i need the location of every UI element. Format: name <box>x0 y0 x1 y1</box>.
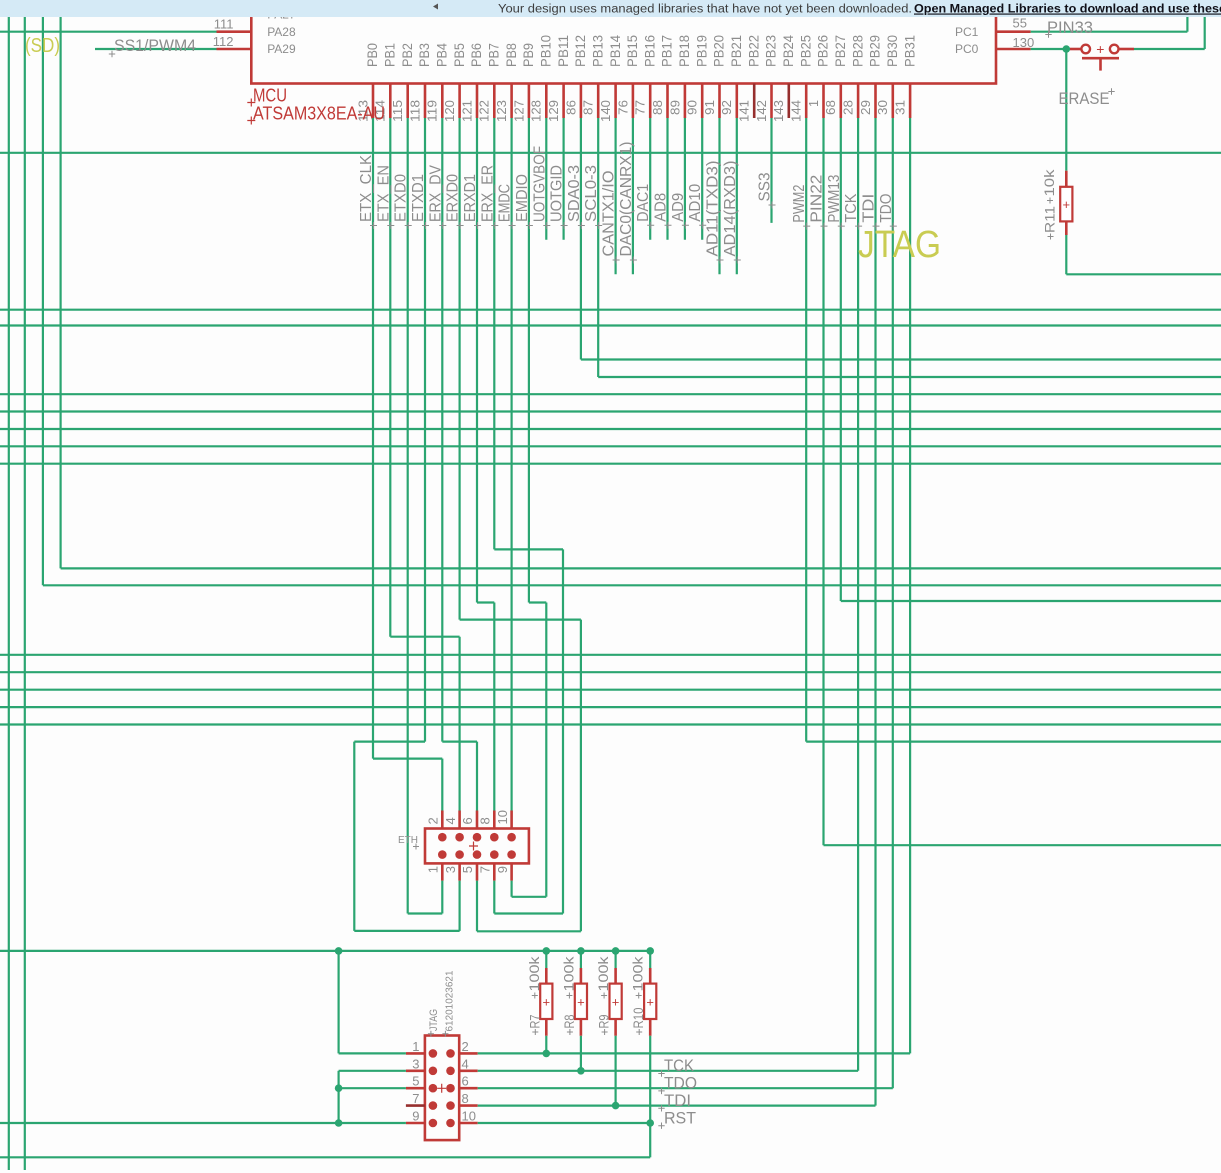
svg-text:140: 140 <box>598 100 613 122</box>
svg-text:4: 4 <box>462 1056 469 1071</box>
svg-text:SCL0-3: SCL0-3 <box>583 165 600 222</box>
svg-text:PB29: PB29 <box>868 35 883 67</box>
svg-text:129: 129 <box>546 100 561 122</box>
svg-text:120: 120 <box>442 100 457 122</box>
svg-text:30: 30 <box>875 100 890 115</box>
svg-text:ETX_EN: ETX_EN <box>375 165 392 222</box>
svg-text:PB21: PB21 <box>729 35 744 67</box>
svg-text:PB14: PB14 <box>608 35 623 67</box>
svg-text:TDO: TDO <box>878 194 895 223</box>
svg-text:89: 89 <box>667 100 682 115</box>
svg-text:MCU: MCU <box>253 86 287 106</box>
svg-text:55: 55 <box>1013 16 1027 31</box>
svg-text:TDI: TDI <box>861 194 878 223</box>
svg-text:10k: 10k <box>1041 168 1057 196</box>
svg-text:119: 119 <box>425 100 440 122</box>
svg-text:91: 91 <box>702 100 717 115</box>
svg-text:61201023621: 61201023621 <box>444 970 456 1031</box>
svg-text:PA29: PA29 <box>267 42 296 56</box>
svg-text:PB31: PB31 <box>902 35 917 67</box>
svg-text:100k: 100k <box>560 955 576 991</box>
svg-text:143: 143 <box>771 100 786 122</box>
svg-text:+: + <box>646 995 654 1010</box>
svg-text:87: 87 <box>581 100 596 115</box>
svg-text:5: 5 <box>412 1074 419 1089</box>
svg-text:AD9: AD9 <box>670 193 687 222</box>
svg-text:TDO: TDO <box>664 1074 697 1093</box>
svg-text:100k: 100k <box>630 955 646 991</box>
svg-text:4: 4 <box>443 817 458 824</box>
svg-text:TDI: TDI <box>664 1091 691 1110</box>
svg-text:PB7: PB7 <box>487 43 502 67</box>
svg-text:PB22: PB22 <box>746 35 761 67</box>
svg-text:8: 8 <box>478 817 493 824</box>
svg-text:10: 10 <box>462 1109 476 1124</box>
svg-text:8: 8 <box>462 1091 469 1106</box>
svg-text:122: 122 <box>477 100 492 122</box>
svg-text:PB25: PB25 <box>798 35 813 67</box>
svg-text:76: 76 <box>615 100 630 115</box>
svg-text:+: + <box>1063 197 1071 212</box>
svg-text:7: 7 <box>478 866 493 873</box>
svg-text:112: 112 <box>213 34 234 49</box>
svg-text:ERASE: ERASE <box>1059 89 1110 108</box>
svg-text:ERX_ER: ERX_ER <box>479 165 496 222</box>
svg-text:PB2: PB2 <box>400 43 415 67</box>
svg-text:PB9: PB9 <box>521 43 536 67</box>
svg-text:7: 7 <box>412 1091 419 1106</box>
svg-text:PB1: PB1 <box>383 43 398 67</box>
svg-text:127: 127 <box>511 100 526 122</box>
svg-text:UOTGVBOF: UOTGVBOF <box>531 146 548 222</box>
svg-text:R9: R9 <box>596 1014 612 1028</box>
svg-text:+: + <box>612 995 620 1010</box>
svg-text:PA28: PA28 <box>267 25 296 39</box>
svg-text:5: 5 <box>460 866 475 873</box>
svg-text:PB15: PB15 <box>625 35 640 67</box>
svg-text:TCK: TCK <box>843 193 860 222</box>
svg-text:ETX_CLK: ETX_CLK <box>358 155 375 222</box>
svg-text:PB12: PB12 <box>573 35 588 67</box>
svg-text:PB28: PB28 <box>850 35 865 67</box>
svg-text:PB19: PB19 <box>694 35 709 67</box>
svg-text:77: 77 <box>633 100 648 115</box>
svg-text:9: 9 <box>495 866 510 873</box>
svg-text:2: 2 <box>426 817 441 824</box>
svg-text:SDA0-3: SDA0-3 <box>566 165 583 222</box>
svg-text:1: 1 <box>412 1039 419 1054</box>
svg-text:ATSAM3X8EA-AU: ATSAM3X8EA-AU <box>253 104 385 124</box>
svg-text:128: 128 <box>529 100 544 122</box>
svg-text:DAC0(CANRX1): DAC0(CANRX1) <box>618 142 635 257</box>
svg-text:142: 142 <box>754 100 769 122</box>
svg-text:118: 118 <box>407 100 422 122</box>
svg-text:Your design uses managed libra: Your design uses managed libraries that … <box>498 4 912 16</box>
svg-text:ERXD0: ERXD0 <box>445 174 462 222</box>
svg-text:PB30: PB30 <box>885 35 900 67</box>
svg-text:PWM13: PWM13 <box>826 175 843 223</box>
svg-text:R11: R11 <box>1042 206 1058 233</box>
svg-text:115: 115 <box>390 100 405 122</box>
svg-text:141: 141 <box>737 100 752 122</box>
svg-text:PB24: PB24 <box>781 35 796 67</box>
svg-text:9: 9 <box>412 1109 419 1124</box>
svg-text:92: 92 <box>719 100 734 115</box>
svg-text:PC1: PC1 <box>955 25 979 39</box>
svg-text:68: 68 <box>823 100 838 115</box>
svg-text:TCK: TCK <box>664 1056 695 1075</box>
svg-text:ETXD1: ETXD1 <box>410 174 427 222</box>
svg-text:R8: R8 <box>561 1014 577 1028</box>
svg-text:JTAG: JTAG <box>428 1009 440 1031</box>
svg-text:PB10: PB10 <box>539 35 554 67</box>
svg-text:ERXD1: ERXD1 <box>462 174 479 222</box>
svg-text:(SD): (SD) <box>25 35 60 57</box>
svg-text:PB11: PB11 <box>556 35 571 67</box>
svg-text:PB5: PB5 <box>452 43 467 67</box>
svg-text:PB18: PB18 <box>677 35 692 67</box>
svg-text:JTAG: JTAG <box>858 224 941 266</box>
svg-text:10: 10 <box>495 810 510 824</box>
svg-text:ETH: ETH <box>398 835 418 846</box>
svg-text:EMDIO: EMDIO <box>514 174 531 222</box>
svg-text:6: 6 <box>460 817 475 824</box>
svg-text:Open Managed Libraries to down: Open Managed Libraries to download and u… <box>914 4 1221 16</box>
svg-text:DAC1: DAC1 <box>635 184 652 222</box>
svg-text:PB8: PB8 <box>504 43 519 67</box>
svg-text:111: 111 <box>214 17 234 32</box>
svg-text:AD8: AD8 <box>653 193 670 222</box>
svg-text:UOTGID: UOTGID <box>549 165 566 222</box>
svg-text:121: 121 <box>459 100 474 122</box>
svg-text:130: 130 <box>1013 35 1035 50</box>
svg-text:90: 90 <box>685 100 700 115</box>
svg-text:RST: RST <box>664 1108 696 1127</box>
svg-text:R7: R7 <box>526 1014 542 1028</box>
svg-text:144: 144 <box>789 100 804 122</box>
svg-text:AD11(TXD3): AD11(TXD3) <box>705 161 722 257</box>
svg-text:AD14(RXD3): AD14(RXD3) <box>722 161 739 257</box>
svg-text:31: 31 <box>893 100 908 115</box>
svg-text:3: 3 <box>412 1056 419 1071</box>
svg-text:PB3: PB3 <box>417 43 432 67</box>
svg-text:PB4: PB4 <box>435 43 450 67</box>
svg-text:PB0: PB0 <box>365 43 380 67</box>
svg-text:PB6: PB6 <box>469 43 484 67</box>
svg-text:PWM2: PWM2 <box>791 185 808 223</box>
svg-text:100k: 100k <box>526 955 542 991</box>
svg-text:PB23: PB23 <box>764 35 779 67</box>
svg-text:PIN33: PIN33 <box>1047 18 1093 37</box>
svg-text:AD10: AD10 <box>687 184 704 222</box>
svg-text:2: 2 <box>462 1039 469 1054</box>
svg-text:28: 28 <box>841 100 856 115</box>
svg-text:1: 1 <box>426 866 441 873</box>
svg-text:29: 29 <box>858 100 873 115</box>
svg-text:EMDC: EMDC <box>497 184 514 222</box>
svg-text:R10: R10 <box>630 1007 646 1028</box>
svg-text:1: 1 <box>806 100 821 107</box>
svg-text:PC0: PC0 <box>955 42 979 56</box>
svg-text:SS3: SS3 <box>757 172 774 201</box>
svg-text:6: 6 <box>462 1074 469 1089</box>
svg-text:86: 86 <box>563 100 578 115</box>
svg-text:3: 3 <box>443 866 458 873</box>
svg-text:ERX_DV: ERX_DV <box>427 165 444 222</box>
svg-text:100k: 100k <box>595 955 611 991</box>
svg-text:PIN22: PIN22 <box>809 174 826 222</box>
svg-text:+: + <box>577 995 585 1010</box>
svg-text:PB26: PB26 <box>816 35 831 67</box>
svg-text:+: + <box>1096 41 1104 57</box>
svg-text:SS1/PWM4: SS1/PWM4 <box>114 36 196 55</box>
svg-text:PB13: PB13 <box>590 35 605 67</box>
svg-text:ETXD0: ETXD0 <box>393 174 410 222</box>
svg-text:PB27: PB27 <box>833 35 848 67</box>
svg-text:PB16: PB16 <box>642 35 657 67</box>
svg-text:88: 88 <box>650 100 665 115</box>
svg-text:CANTX1/IO: CANTX1/IO <box>601 171 618 257</box>
svg-text:PB17: PB17 <box>660 35 675 67</box>
svg-text:PB20: PB20 <box>712 35 727 67</box>
svg-text:123: 123 <box>494 100 509 122</box>
svg-text:+: + <box>543 995 551 1010</box>
